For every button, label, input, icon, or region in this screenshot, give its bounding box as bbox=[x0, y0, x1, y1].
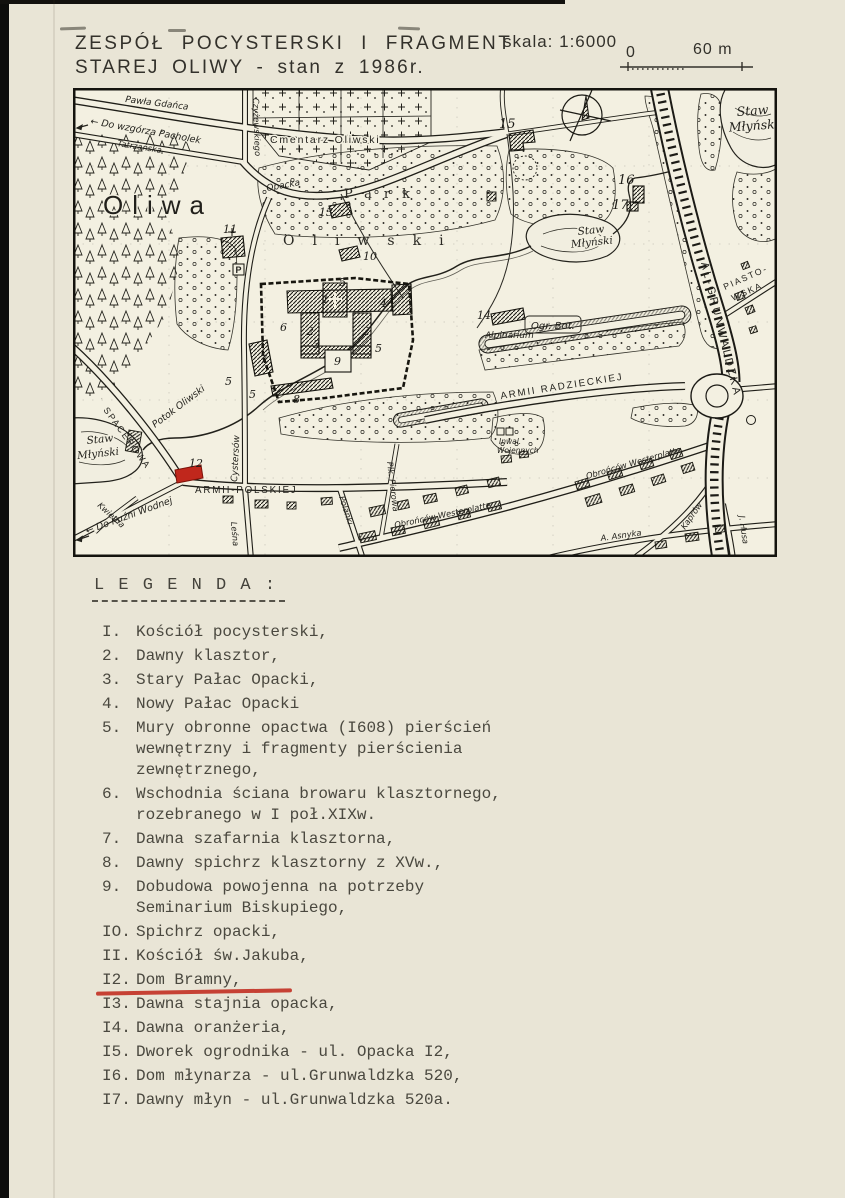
scalebar bbox=[612, 58, 762, 74]
legend-item-text: Dawna oranżeria, bbox=[136, 1018, 290, 1039]
map-number: 8 bbox=[293, 393, 300, 406]
legend-item-text: Mury obronne opactwa (I608) pierścień we… bbox=[136, 718, 491, 781]
legend-item-number: I3. bbox=[102, 994, 136, 1015]
legend-item-text: Kościół św.Jakuba, bbox=[136, 946, 309, 967]
cemetery-label: Cmentarz Oliwski bbox=[270, 134, 380, 146]
legend-item-number: I6. bbox=[102, 1066, 136, 1087]
legend-item: I3.Dawna stajnia opacka, bbox=[102, 994, 622, 1015]
legend-item-number: I7. bbox=[102, 1090, 136, 1111]
legend-item: IO.Spichrz opacki, bbox=[102, 922, 622, 943]
ogrbot-label: Ogr. Bot. bbox=[531, 321, 575, 332]
legend-item-number: II. bbox=[102, 946, 136, 967]
map-number: 5 bbox=[249, 388, 256, 401]
legend-item-text: Nowy Pałac Opacki bbox=[136, 694, 299, 715]
legend-item-text: Dawny młyn - ul.Grunwaldzka 520a. bbox=[136, 1090, 453, 1111]
legend-item-text: Dawna szafarnia klasztorna, bbox=[136, 829, 395, 850]
legend-item: I7.Dawny młyn - ul.Grunwaldzka 520a. bbox=[102, 1090, 622, 1111]
legend-item-number: 4. bbox=[102, 694, 136, 715]
legend-item-number: 9. bbox=[102, 877, 136, 919]
map-number: 11 bbox=[223, 223, 237, 236]
scalebar-end: 60 m bbox=[693, 41, 733, 59]
legend-item: I2.Dom Bramny, bbox=[102, 970, 622, 991]
inwal-label-2: Wojennych bbox=[497, 446, 539, 455]
legend-item: II.Kościół św.Jakuba, bbox=[102, 946, 622, 967]
legend-item-text: Dworek ogrodnika - ul. Opacka I2, bbox=[136, 1042, 453, 1063]
map-number: 5 bbox=[225, 375, 232, 388]
map-number: 1 bbox=[322, 293, 329, 306]
paper-crease bbox=[53, 0, 55, 1198]
alpinarium-label: Alpinarium bbox=[484, 331, 534, 341]
inwal-label-1: Inwal. bbox=[499, 437, 521, 446]
scan-smudge bbox=[60, 27, 86, 31]
legend-item-number: 8. bbox=[102, 853, 136, 874]
map-number: 7 bbox=[260, 353, 267, 366]
legend-item: 6.Wschodnia ściana browaru klasztornego,… bbox=[102, 784, 622, 826]
map-number: 12 bbox=[189, 457, 203, 470]
legend-item: I.Kościół pocysterski, bbox=[102, 622, 622, 643]
svg-text:P: P bbox=[236, 265, 242, 275]
legend-item-text: Stary Pałac Opacki, bbox=[136, 670, 318, 691]
map-number: 4 bbox=[379, 297, 387, 310]
map-number: 2 bbox=[306, 325, 314, 338]
scan-edge-left bbox=[0, 0, 9, 1198]
legend-item-number: 7. bbox=[102, 829, 136, 850]
legend-item: 5.Mury obronne opactwa (I608) pierścień … bbox=[102, 718, 622, 781]
map-title-line1: ZESPÓŁ POCYSTERSKI I FRAGMENT bbox=[75, 33, 512, 55]
parking-symbol: P bbox=[233, 264, 244, 275]
scan-smudge bbox=[168, 29, 186, 32]
map-number: 16 bbox=[618, 173, 635, 188]
legend-item: 7.Dawna szafarnia klasztorna, bbox=[102, 829, 622, 850]
legend-item: 4.Nowy Pałac Opacki bbox=[102, 694, 622, 715]
legend-item-number: 3. bbox=[102, 670, 136, 691]
legend-header: L E G E N D A : bbox=[92, 576, 285, 602]
legend-item: 9.Dobudowa powojenna na potrzeby Seminar… bbox=[102, 877, 622, 919]
legend-list: I.Kościół pocysterski,2.Dawny klasztor,3… bbox=[102, 622, 622, 1114]
legend-item: I5.Dworek ogrodnika - ul. Opacka I2, bbox=[102, 1042, 622, 1063]
legend-item: 2.Dawny klasztor, bbox=[102, 646, 622, 667]
legend-item-number: IO. bbox=[102, 922, 136, 943]
scanned-page: ZESPÓŁ POCYSTERSKI I FRAGMENT STAREJ OLI… bbox=[0, 0, 845, 1198]
scan-edge-top bbox=[0, 0, 565, 4]
street-lesna: Leśna bbox=[229, 521, 241, 546]
legend-item-text: Kościół pocysterski, bbox=[136, 622, 328, 643]
legend-item-number: 5. bbox=[102, 718, 136, 781]
legend-item-text: Wschodnia ściana browaru klasztornego, r… bbox=[136, 784, 501, 826]
map-number: 15 bbox=[499, 117, 516, 132]
street-czyzewskiego: Czyżewskiego bbox=[251, 98, 263, 157]
legend-item-number: 2. bbox=[102, 646, 136, 667]
street-armii-polskiej: ARMII-POLSKIEJ bbox=[195, 485, 298, 496]
legend-item-text: Dobudowa powojenna na potrzeby Seminariu… bbox=[136, 877, 424, 919]
map-figure: P Oliwa Park Oliwski Cmentarz Oliwski Pa… bbox=[73, 88, 777, 557]
oliwski-label: Oliwski bbox=[283, 233, 462, 249]
scale-ratio-label: skala: 1:6000 bbox=[503, 32, 617, 52]
legend-item: 3.Stary Pałac Opacki, bbox=[102, 670, 622, 691]
oliwa-label: Oliwa bbox=[103, 190, 213, 220]
map-number: 5 bbox=[375, 342, 382, 355]
legend-item-text: Dawny klasztor, bbox=[136, 646, 280, 667]
legend-item-number: I5. bbox=[102, 1042, 136, 1063]
legend-item-number: I2. bbox=[102, 970, 136, 991]
scan-smudge bbox=[398, 27, 420, 31]
legend-item: I4.Dawna oranżeria, bbox=[102, 1018, 622, 1039]
map-number: 14 bbox=[477, 309, 491, 322]
map-title-line2: STAREJ OLIWY - stan z 1986r. bbox=[75, 57, 425, 79]
park-label: Park bbox=[344, 187, 422, 202]
legend-item-number: I. bbox=[102, 622, 136, 643]
map-number: 2 bbox=[362, 325, 370, 338]
map-number: 10 bbox=[363, 250, 377, 263]
legend-item-text: Dom Bramny, bbox=[136, 970, 242, 991]
map-number: 3 bbox=[313, 338, 320, 351]
map-number: 5 bbox=[339, 276, 346, 289]
legend-item-text: Dawny spichrz klasztorny z XVw., bbox=[136, 853, 443, 874]
legend-item-text: Dawna stajnia opacka, bbox=[136, 994, 338, 1015]
map-number: 9 bbox=[334, 355, 341, 368]
map-number: 6 bbox=[280, 321, 287, 334]
legend-item-number: I4. bbox=[102, 1018, 136, 1039]
legend-item-number: 6. bbox=[102, 784, 136, 826]
map-number: 17 bbox=[612, 198, 629, 213]
legend-item-text: Dom młynarza - ul.Grunwaldzka 520, bbox=[136, 1066, 462, 1087]
map-number: 13 bbox=[319, 206, 333, 219]
legend-item-text: Spichrz opacki, bbox=[136, 922, 280, 943]
legend-item: 8.Dawny spichrz klasztorny z XVw., bbox=[102, 853, 622, 874]
legend-item: I6.Dom młynarza - ul.Grunwaldzka 520, bbox=[102, 1066, 622, 1087]
